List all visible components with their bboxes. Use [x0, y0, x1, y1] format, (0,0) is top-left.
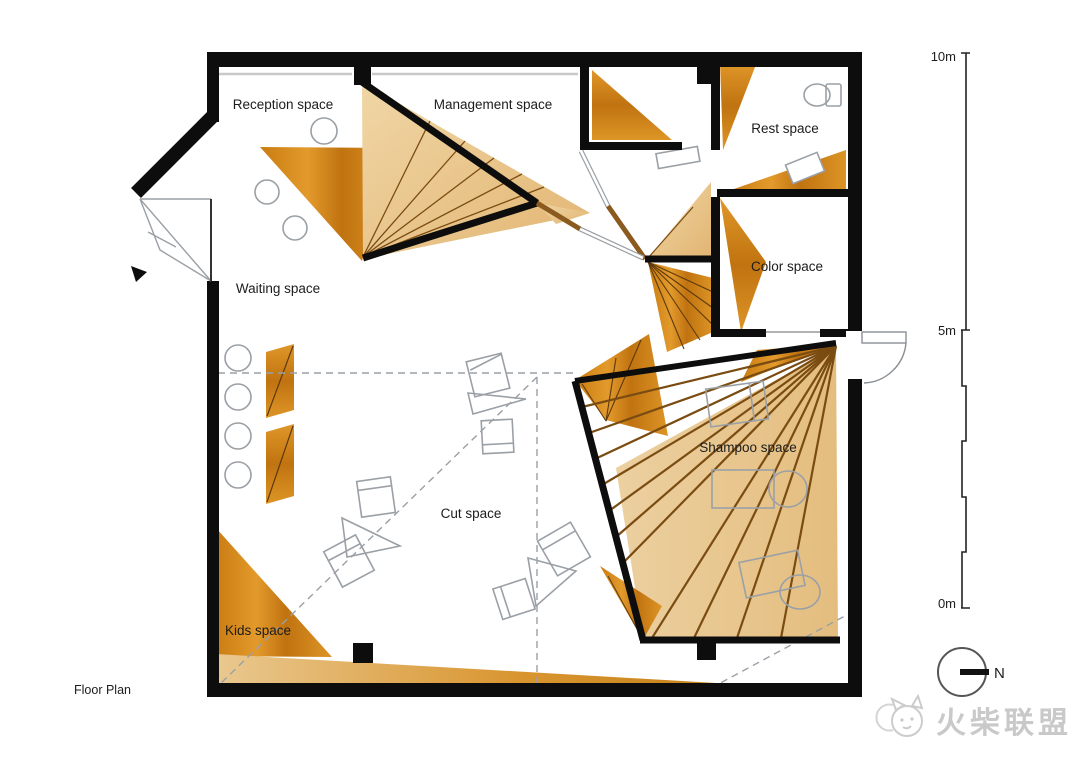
wall-stub-top [354, 67, 371, 85]
storage-wall-left [580, 67, 589, 150]
scale-bar-line [961, 53, 970, 608]
label-color-space: Color space [751, 259, 823, 274]
toilet [804, 84, 841, 106]
stool [311, 118, 337, 144]
scale-bar: 10m 5m 0m [931, 49, 970, 611]
storage-wall-bottom [580, 142, 682, 150]
stool [225, 462, 251, 488]
door-leaf [862, 332, 906, 343]
rest-color-divider [717, 189, 848, 197]
label-rest-space: Rest space [751, 121, 819, 136]
entrance-door-folds [140, 199, 211, 281]
watermark: 火柴联盟 [876, 696, 1072, 740]
floor-wood-wedge [216, 654, 768, 686]
label-kids-space: Kids space [225, 623, 291, 638]
cut-station [324, 477, 400, 587]
column-stub-left [353, 643, 373, 663]
column-stub-right [697, 641, 716, 660]
wall-entry-chamfer [136, 116, 213, 193]
color-wall-left [711, 197, 720, 337]
label-management-space: Management space [434, 97, 553, 112]
watermark-text: 火柴联盟 [936, 707, 1072, 740]
north-label: N [994, 665, 1005, 682]
stool [255, 180, 279, 204]
label-cut-space: Cut space [441, 506, 502, 521]
label-waiting-space: Waiting space [236, 281, 320, 296]
stool [225, 423, 251, 449]
mid-dark-fan [648, 262, 713, 352]
cut-station [466, 353, 526, 454]
wall-top [207, 52, 862, 67]
watermark-cat-icon [876, 696, 922, 736]
stool [283, 216, 307, 240]
door-swing-arc [864, 343, 906, 383]
scale-label-10m: 10m [931, 49, 956, 64]
wall-left-lower [207, 281, 219, 687]
wall-left-upper [207, 52, 219, 122]
scale-label-0m: 0m [938, 596, 956, 611]
label-reception-space: Reception space [233, 97, 334, 112]
stool [225, 384, 251, 410]
color-wall-bottom-a [711, 329, 767, 337]
rest-wood-wedge-top [720, 62, 757, 150]
drawing-caption: Floor Plan [74, 683, 131, 697]
entrance-arrow-icon [131, 266, 147, 282]
waiting-wood-panels [266, 344, 294, 504]
storage-wood-triangle [592, 70, 672, 140]
stool [225, 345, 251, 371]
scale-label-5m: 5m [938, 323, 956, 338]
cut-station [493, 522, 591, 619]
label-shampoo-space: Shampoo space [699, 440, 797, 455]
north-arrow: N [938, 648, 1005, 696]
rest-wall-left [711, 62, 720, 150]
color-wall-bottom-b [820, 329, 848, 337]
wall-bottom [207, 683, 862, 697]
floor-plan-canvas: Reception space Management space Rest sp… [0, 0, 1080, 763]
